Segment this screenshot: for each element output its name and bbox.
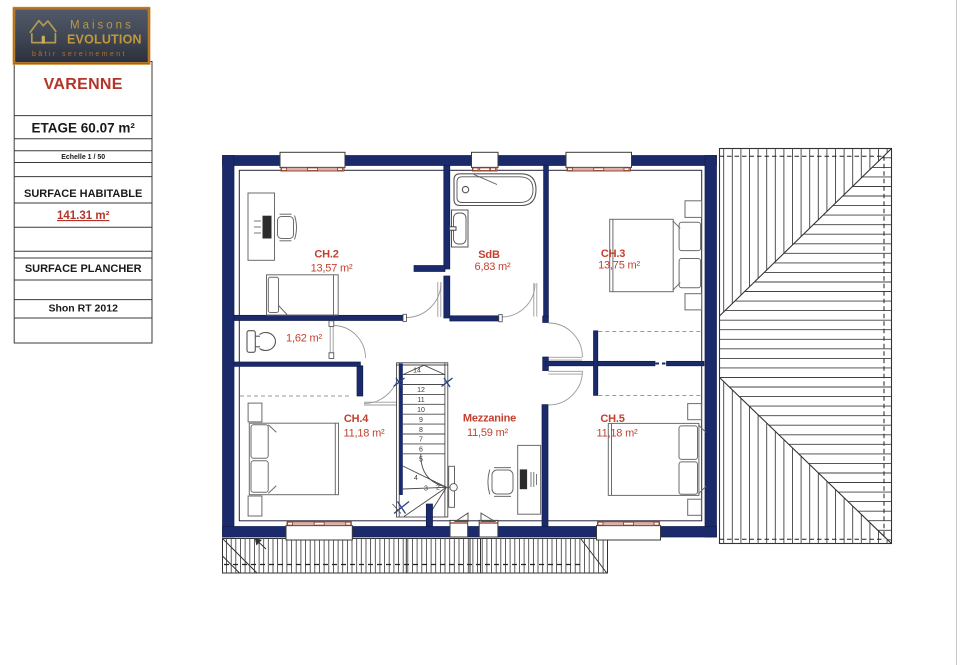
svg-text:4: 4 bbox=[414, 475, 418, 482]
svg-text:ETAGE 60.07 m²: ETAGE 60.07 m² bbox=[32, 121, 136, 136]
svg-text:Echelle 1 / 50: Echelle 1 / 50 bbox=[61, 154, 105, 161]
svg-text:6,83 m²: 6,83 m² bbox=[475, 261, 511, 273]
svg-text:Mezzanine: Mezzanine bbox=[463, 413, 516, 425]
svg-text:13,57 m²: 13,57 m² bbox=[311, 263, 353, 275]
svg-text:CH.3: CH.3 bbox=[601, 248, 625, 260]
svg-text:11,18 m²: 11,18 m² bbox=[597, 428, 639, 440]
svg-text:SURFACE PLANCHER: SURFACE PLANCHER bbox=[25, 263, 142, 275]
svg-text:EVOLUTION: EVOLUTION bbox=[67, 33, 142, 47]
svg-text:bâtir sereinement: bâtir sereinement bbox=[32, 51, 127, 58]
svg-text:Shon RT 2012: Shon RT 2012 bbox=[48, 303, 118, 315]
svg-text:CH.4: CH.4 bbox=[344, 413, 369, 425]
svg-text:13,75 m²: 13,75 m² bbox=[598, 260, 640, 272]
svg-text:CH.5: CH.5 bbox=[600, 413, 624, 425]
svg-text:10: 10 bbox=[417, 407, 425, 414]
svg-text:11: 11 bbox=[417, 397, 424, 404]
svg-text:11,59 m²: 11,59 m² bbox=[467, 427, 509, 439]
svg-text:14: 14 bbox=[413, 368, 421, 375]
svg-text:Maisons: Maisons bbox=[70, 20, 134, 32]
svg-text:5: 5 bbox=[419, 457, 423, 464]
svg-text:SURFACE HABITABLE: SURFACE HABITABLE bbox=[24, 188, 142, 200]
svg-text:8: 8 bbox=[419, 427, 423, 434]
svg-text:3: 3 bbox=[424, 486, 428, 493]
svg-text:VARENNE: VARENNE bbox=[44, 76, 123, 93]
svg-text:CH.2: CH.2 bbox=[314, 249, 338, 261]
svg-text:2: 2 bbox=[436, 485, 440, 492]
svg-text:12: 12 bbox=[417, 387, 425, 394]
svg-text:7: 7 bbox=[419, 437, 423, 444]
svg-text:141.31 m²: 141.31 m² bbox=[57, 210, 110, 222]
svg-text:9: 9 bbox=[419, 417, 423, 424]
svg-text:1,62 m²: 1,62 m² bbox=[286, 333, 322, 345]
svg-text:11,18 m²: 11,18 m² bbox=[344, 428, 386, 440]
svg-text:6: 6 bbox=[419, 447, 423, 454]
svg-text:SdB: SdB bbox=[478, 249, 500, 261]
